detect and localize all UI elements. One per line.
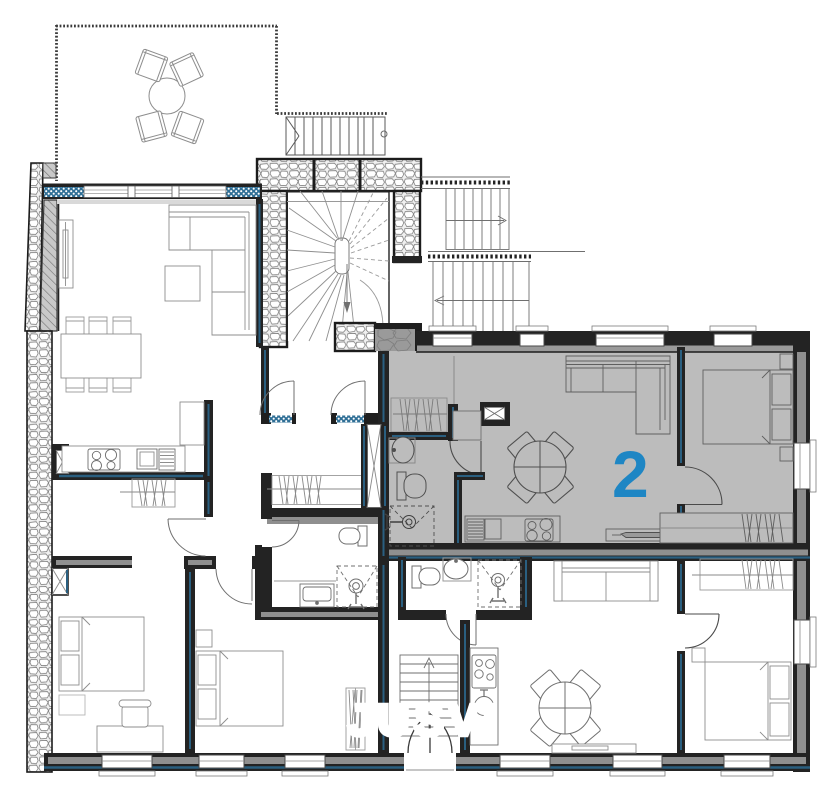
svg-text:JUSVI: JUSVI: [348, 696, 500, 745]
svg-text:2: 2: [612, 437, 649, 511]
